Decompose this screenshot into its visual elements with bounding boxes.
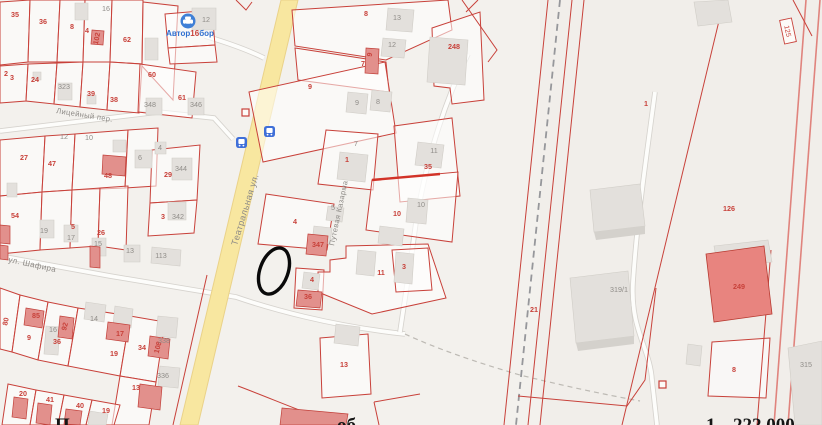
- parcel-number-label: 9: [27, 333, 31, 342]
- caption-fragment: П: [55, 415, 70, 425]
- parcel-number-label: 27: [20, 153, 28, 162]
- parcel-number-label: 39: [87, 89, 95, 98]
- parcel-number-label: 8: [70, 22, 74, 31]
- parcel-number-label: 1: [644, 99, 648, 108]
- parcel-number-label: 62: [123, 35, 131, 44]
- building-number-label: 9: [355, 98, 359, 107]
- parcel-number-label: 3: [402, 262, 406, 271]
- parcel-number-label: 60: [148, 70, 156, 79]
- parcel-number-label: 29: [164, 170, 172, 179]
- cadastral-map: 3536846223243938606110227474829354526808…: [0, 0, 822, 425]
- building-number-label: 8: [376, 97, 380, 106]
- parcel-number-label: 48: [104, 171, 112, 180]
- parcel-number-label: 34: [138, 343, 146, 352]
- parcel-number-label: 1: [345, 155, 349, 164]
- parcel-number-label: 19: [102, 406, 110, 415]
- parcel-number-label: 7: [361, 59, 365, 68]
- building-number-label: 14: [90, 314, 98, 323]
- building-number-label: 344: [175, 164, 187, 173]
- caption-fragment: 1: [706, 415, 716, 425]
- bus-stop-icon[interactable]: [264, 126, 275, 137]
- parcel-number-label: 36: [53, 337, 61, 346]
- building-number-label: 19: [40, 226, 48, 235]
- building-number-label: 348: [144, 100, 156, 109]
- map-canvas[interactable]: 3536846223243938606110227474829354526808…: [0, 0, 822, 425]
- building-number-label: 346: [190, 100, 202, 109]
- parcel-number-label: 10: [393, 209, 401, 218]
- parcel-number-label: 35: [424, 162, 432, 171]
- building-number-label: 319/1: [610, 285, 628, 294]
- parcel-number-label: 21: [530, 305, 538, 314]
- parcel-number-label: 41: [46, 395, 54, 404]
- caption-fragment: об: [337, 415, 356, 425]
- parcel-number-label: 20: [19, 389, 27, 398]
- parcel-number-label: 54: [11, 211, 19, 220]
- parcel-number-label: 3: [10, 73, 14, 82]
- building-number-label: 315: [800, 360, 812, 369]
- parcel-number-label: 35: [11, 10, 19, 19]
- building-number-label: 12: [60, 132, 68, 141]
- parcel-number-label: 248: [448, 42, 460, 51]
- building-number-label: 338: [158, 336, 170, 345]
- building-number-label: 323: [58, 82, 70, 91]
- parcel-number-label: 19: [110, 349, 118, 358]
- parcel-number-label: 38: [110, 95, 118, 104]
- building-number-label: 16: [49, 325, 57, 334]
- parcel-number-label: 4: [85, 26, 89, 35]
- building-number-label: 6: [138, 153, 142, 162]
- parcel-number-label: 11: [377, 268, 385, 277]
- bus-stop-icon[interactable]: [236, 137, 247, 148]
- building-number-label: 16: [102, 4, 110, 13]
- building-number-label: 7: [354, 139, 358, 148]
- parcel-number-label: 61: [178, 93, 186, 102]
- red-square-marker: [659, 381, 666, 388]
- parcel-number-label: 4: [293, 217, 297, 226]
- parcel-number-label: 26: [97, 228, 105, 237]
- parcel-number-label: 4: [310, 275, 314, 284]
- building-number-label: 17: [67, 233, 75, 242]
- parcel-number-label: 347: [312, 240, 324, 249]
- red-square-marker: [242, 109, 249, 116]
- parcel-number-label: 249: [733, 282, 745, 291]
- poi-label[interactable]: Автор16бор: [166, 29, 214, 38]
- caption-fragment: 222 000: [733, 415, 795, 425]
- building-number-label: 15: [94, 239, 102, 248]
- parcel-number-label: 36: [39, 17, 47, 26]
- building-number-label: 336: [157, 371, 169, 380]
- parcel-number-label: 47: [48, 159, 56, 168]
- parcel-number-label: 8: [364, 9, 368, 18]
- parcel-number-label: 36: [304, 292, 312, 301]
- parcel-number-label: 85: [32, 311, 40, 320]
- building-number-label: 12: [388, 40, 396, 49]
- parcel-number-label: 13: [132, 383, 140, 392]
- parcel-number-label: 5: [71, 222, 75, 231]
- parcel-number-label: 13: [340, 360, 348, 369]
- parcel-number-label: 3: [161, 212, 165, 221]
- building-number-label: 13: [126, 246, 134, 255]
- parcel-number-label: 40: [76, 401, 84, 410]
- building-number-label: 11: [430, 146, 437, 155]
- building-number-label: 4: [158, 143, 162, 152]
- building-number-label: 113: [155, 251, 166, 260]
- parcel-number-label: 24: [31, 75, 39, 84]
- building-number-label: 12: [202, 15, 210, 24]
- building-number-label: 13: [393, 13, 401, 22]
- parcel-number-label: 17: [116, 329, 124, 338]
- building-number-label: 10: [417, 200, 425, 209]
- parcel-number-label: 126: [723, 204, 735, 213]
- building-number-label: 10: [85, 133, 93, 142]
- parcel-number-label: 2: [4, 69, 8, 78]
- parcel-number-label: 9: [308, 82, 312, 91]
- parcel-number-label: 8: [732, 365, 736, 374]
- building-number-label: 342: [172, 212, 184, 221]
